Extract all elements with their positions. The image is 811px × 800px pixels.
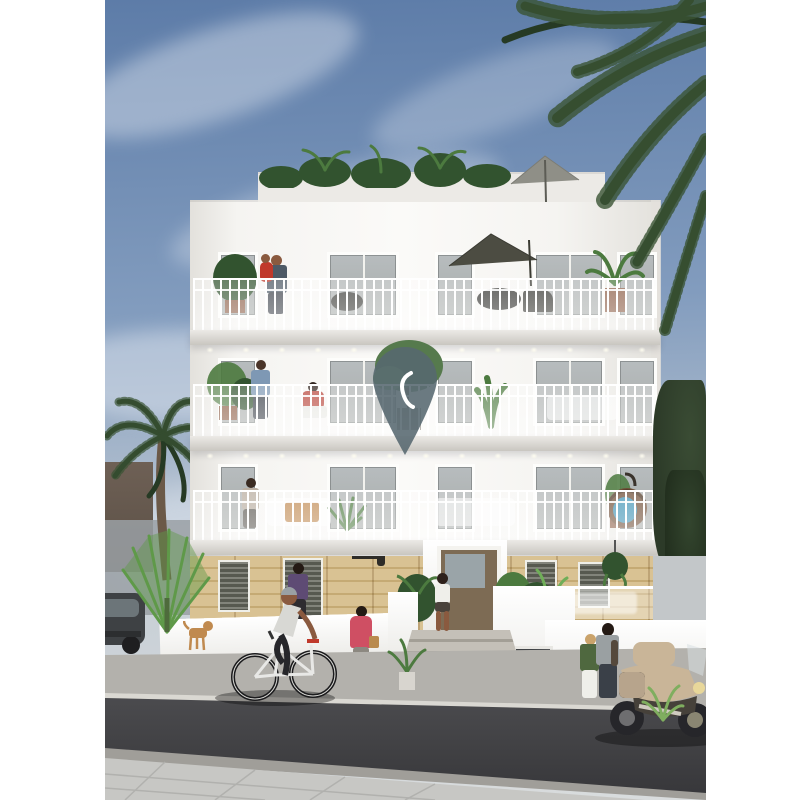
entrance-pot-plant: [387, 636, 427, 694]
cloud-streak: [105, 0, 372, 164]
scene: [105, 0, 706, 800]
map-pin-logo: [373, 347, 437, 457]
palm-fronds-overhang: [465, 0, 706, 360]
street-palm-bush: [641, 672, 685, 722]
rendering-canvas: [0, 0, 811, 800]
cyclist: [223, 583, 339, 703]
balcony-railing-floor1: [193, 490, 657, 544]
